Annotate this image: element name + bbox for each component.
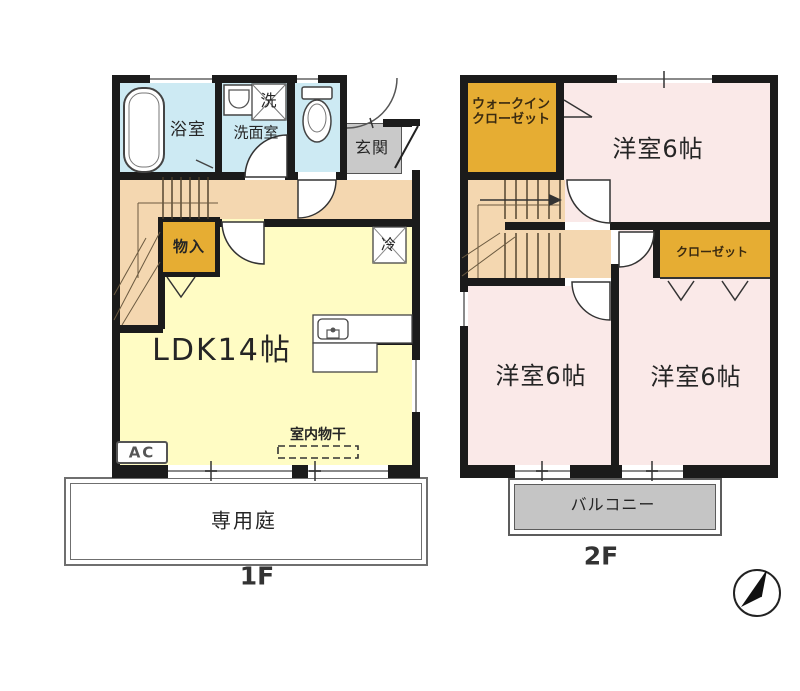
room-label-bedroom-bottom-right: 洋室6帖	[650, 364, 741, 392]
room-label-private-garden: 専用庭	[211, 510, 277, 533]
room-label-walkin-closet: ウォークイン クローゼット	[472, 98, 550, 128]
plan-linework	[0, 0, 800, 691]
indoor-drying-symbol	[278, 446, 358, 458]
kitchen-counter	[313, 315, 412, 372]
room-label-storage: 物入	[173, 238, 205, 255]
floor-label-2f: 2F	[584, 543, 618, 572]
room-label-bedroom-top: 洋室6帖	[612, 136, 703, 164]
bathtub-icon	[124, 88, 164, 172]
room-label-balcony: バルコニー	[571, 496, 656, 514]
floor-plan-canvas: 浴室 洗 洗面室 玄関 物入 LDK14帖 冷 AC 室内物干 専用庭 1F ウ…	[0, 0, 800, 691]
room-label-fridge: 冷	[381, 236, 397, 253]
room-label-washroom: 洗面室	[233, 124, 278, 141]
room-label-ac: AC	[129, 444, 156, 461]
room-label-entrance: 玄関	[355, 139, 389, 157]
room-label-washer-box: 洗	[260, 92, 277, 110]
room-label-ldk: LDK14帖	[152, 334, 292, 369]
toilet-icon	[302, 87, 332, 142]
room-label-bath: 浴室	[170, 121, 206, 141]
room-label-indoor-drying: 室内物干	[290, 427, 346, 443]
room-label-bedroom-bottom-left: 洋室6帖	[495, 363, 586, 391]
floor-label-1f: 1F	[240, 563, 274, 592]
room-label-closet: クローゼット	[676, 246, 748, 260]
sink-icon	[224, 85, 254, 115]
north-arrow-icon	[734, 570, 780, 616]
